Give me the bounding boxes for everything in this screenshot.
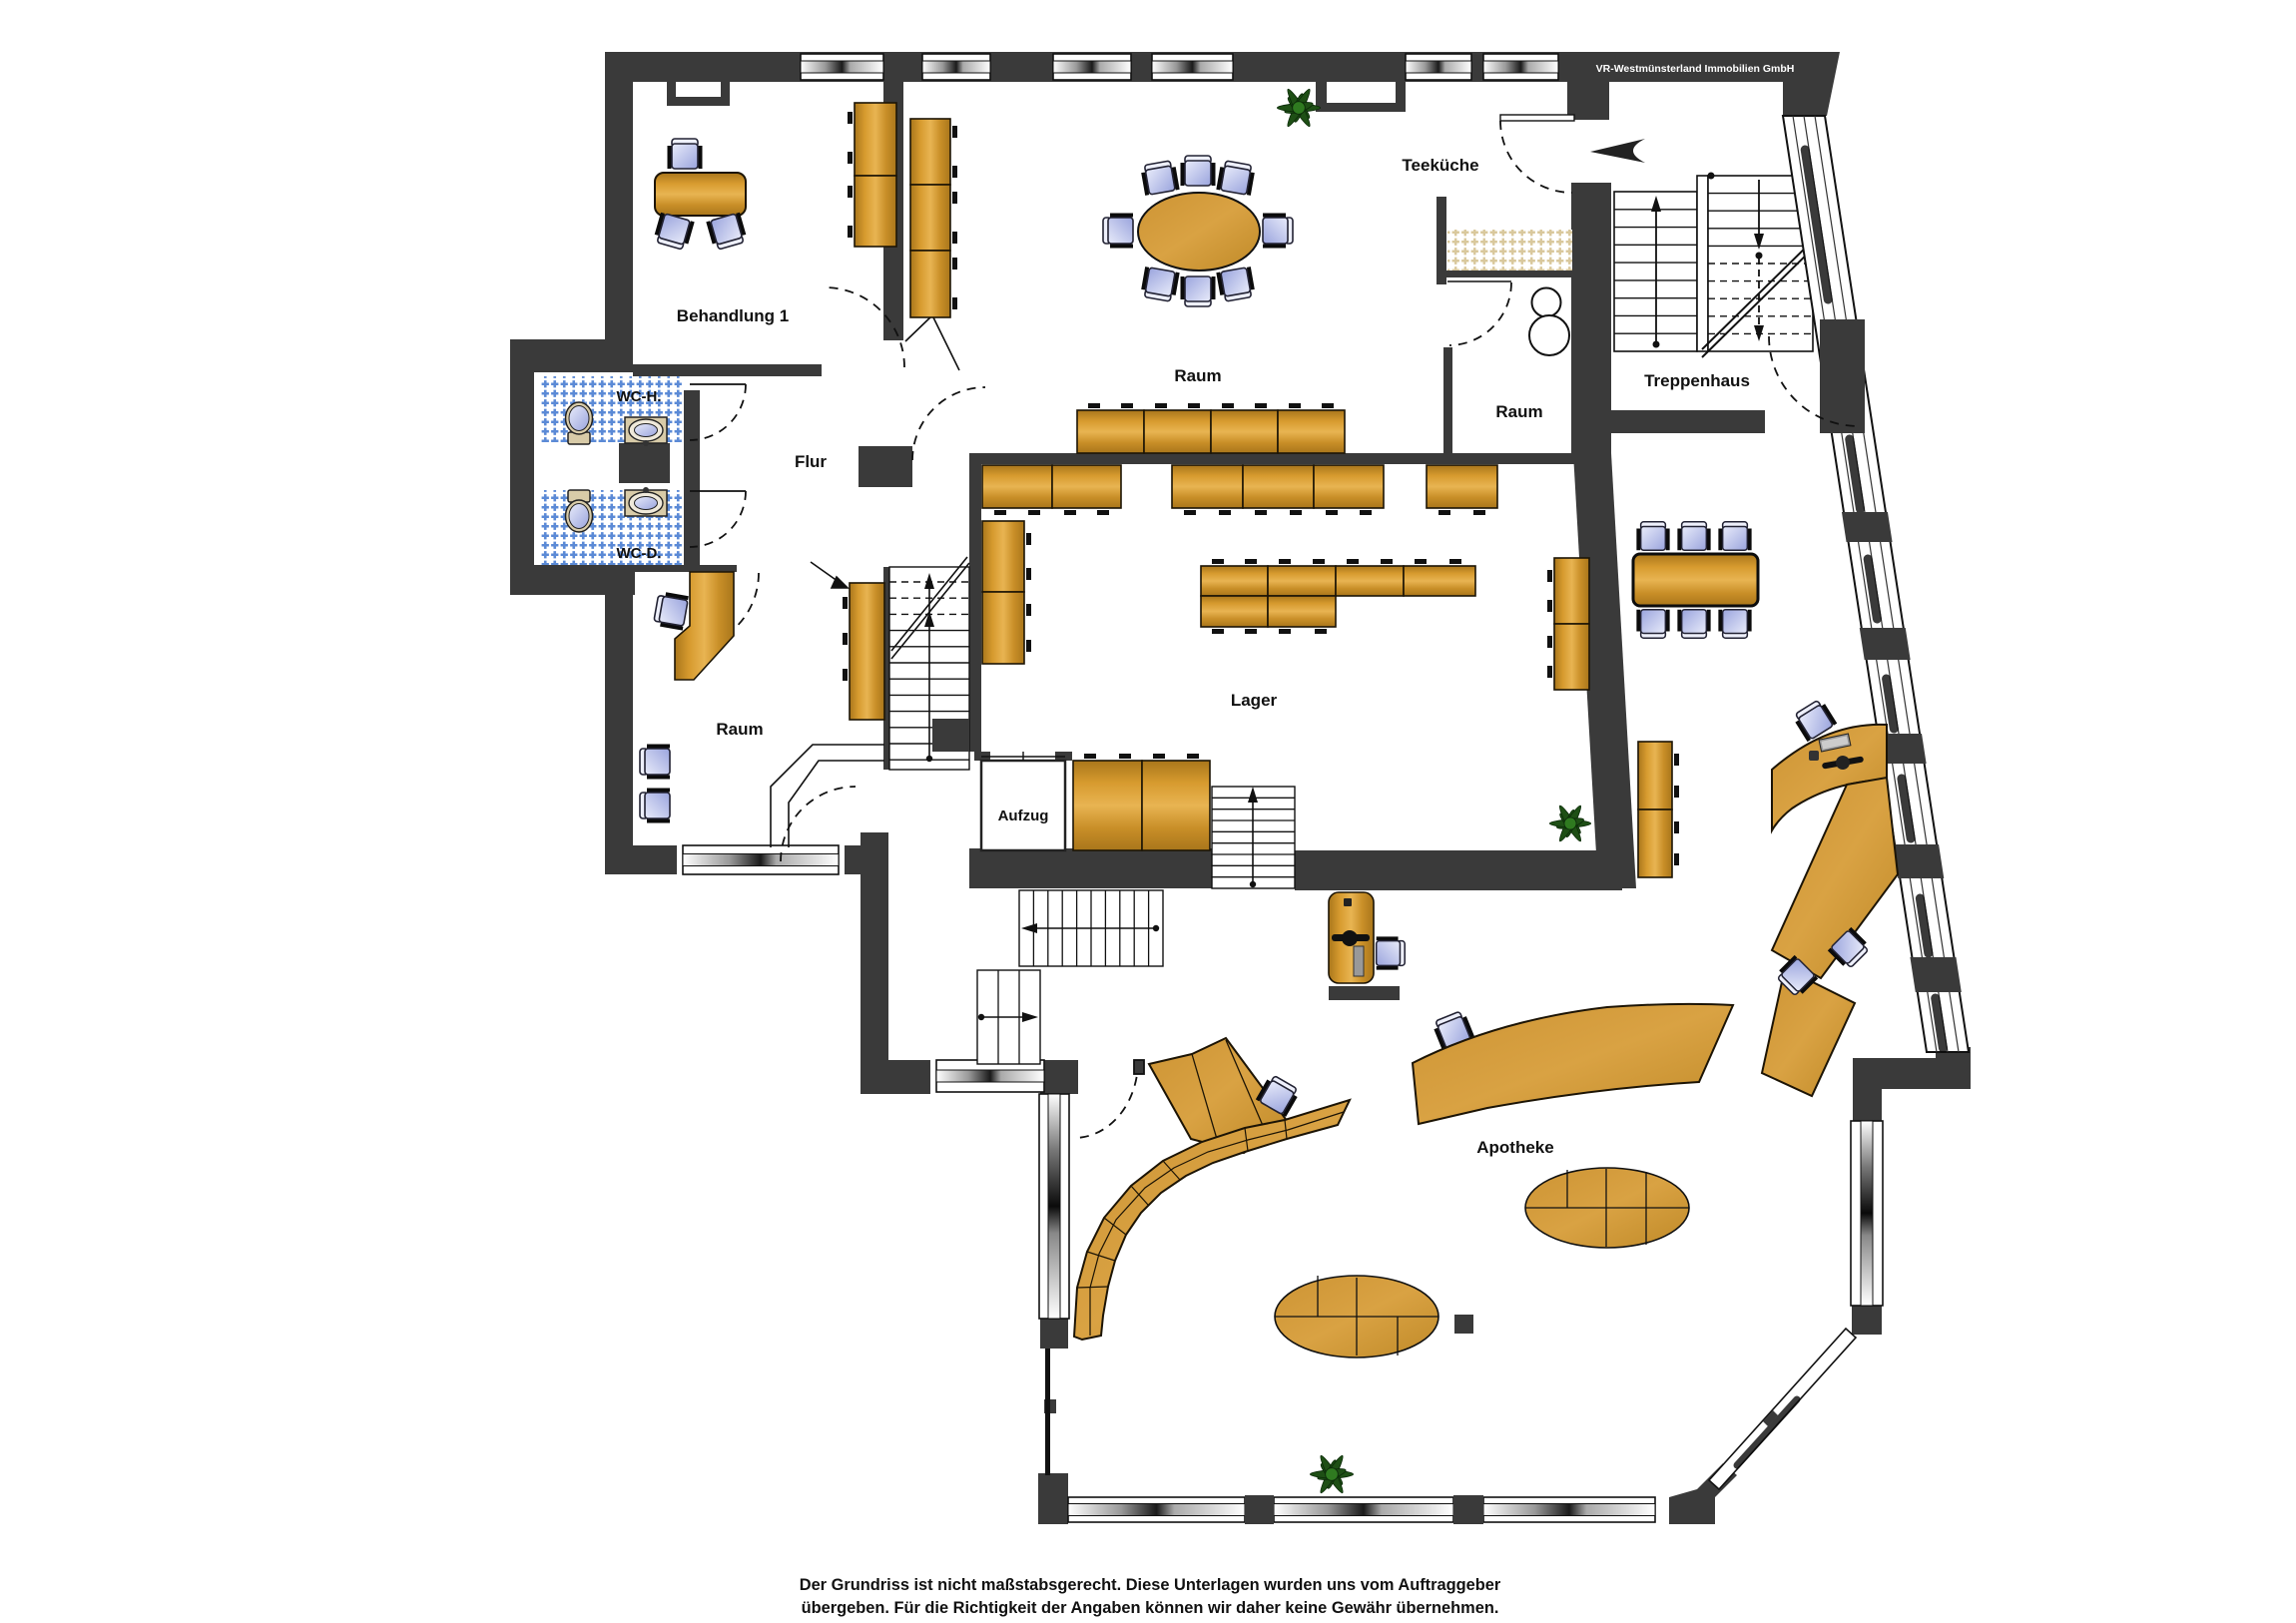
svg-text:WC-D.: WC-D. xyxy=(617,545,662,562)
svg-text:WC-H.: WC-H. xyxy=(617,388,662,405)
svg-text:Raum: Raum xyxy=(1174,366,1221,385)
svg-text:Flur: Flur xyxy=(795,452,827,471)
svg-text:Lager: Lager xyxy=(1231,691,1278,710)
svg-text:Aufzug: Aufzug xyxy=(998,808,1049,824)
svg-text:Apotheke: Apotheke xyxy=(1476,1138,1553,1157)
svg-text:Teeküche: Teeküche xyxy=(1402,156,1478,175)
svg-text:VR-Westmünsterland Immobilien: VR-Westmünsterland Immobilien GmbH xyxy=(1596,63,1795,75)
svg-text:Raum: Raum xyxy=(1495,402,1542,421)
svg-text:Raum: Raum xyxy=(716,720,763,739)
svg-text:Der Grundriss ist nicht maßsta: Der Grundriss ist nicht maßstabsgerecht.… xyxy=(800,1576,1501,1594)
svg-text:Behandlung 1: Behandlung 1 xyxy=(677,306,789,325)
svg-text:übergeben. Für die Richtigkeit: übergeben. Für die Richtigkeit der Angab… xyxy=(802,1599,1499,1617)
svg-text:Treppenhaus: Treppenhaus xyxy=(1644,371,1750,390)
